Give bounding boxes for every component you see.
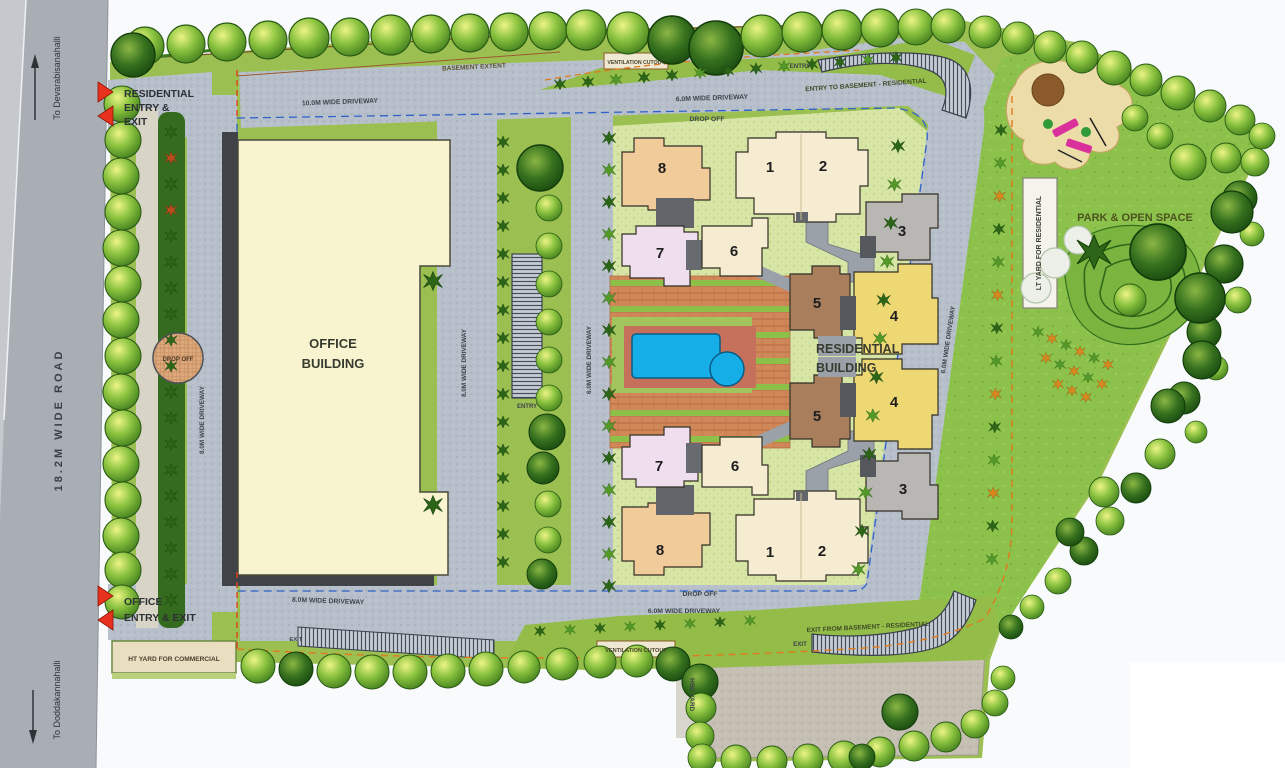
tree-icon [1170, 144, 1206, 180]
tree-icon [371, 15, 411, 55]
tower-number: 1 [766, 159, 774, 176]
tree-icon [469, 652, 503, 686]
tree-icon [648, 16, 696, 64]
tower-number: 1 [766, 544, 774, 561]
road-south-destination-label: To Doddakannahalli [52, 660, 62, 739]
tree-icon [241, 649, 275, 683]
tower-number: 4 [890, 308, 899, 325]
tree-icon [103, 518, 139, 554]
tree-icon [882, 694, 918, 730]
park-open-space-label: PARK & OPEN SPACE [1077, 212, 1193, 224]
ventilation-cutout-bottom-label: VENTILATION CUTOUT [605, 648, 667, 654]
tree-icon [105, 194, 141, 230]
tree-icon [1211, 191, 1253, 233]
driveway-label-center-right: 6.0M WIDE DRIVEWAY [586, 325, 593, 394]
driveway-label-center-left: 8.0M WIDE DRIVEWAY [461, 328, 468, 397]
tree-icon [1194, 90, 1226, 122]
tree-icon [208, 23, 246, 61]
tree-icon [490, 13, 528, 51]
tree-icon [1002, 22, 1034, 54]
tree-icon [1114, 284, 1146, 316]
tree-icon [1097, 51, 1131, 85]
tree-icon [861, 9, 899, 47]
tree-icon [1151, 389, 1185, 423]
tree-icon [111, 33, 155, 77]
tree-icon [991, 666, 1015, 690]
tree-icon [536, 271, 562, 297]
entry-label-top-right: ENTRY [790, 63, 812, 70]
tree-icon [103, 374, 139, 410]
tree-icon [412, 15, 450, 53]
tower-number: 3 [898, 223, 906, 240]
tree-icon [105, 410, 141, 446]
tree-icon [535, 527, 561, 553]
tree-icon [1211, 143, 1241, 173]
entry-label-pool-walkway: ENTRY [517, 404, 537, 410]
ht-yard-label: HT YARD FOR COMMERCIAL [128, 656, 220, 663]
tree-icon [931, 9, 965, 43]
tree-icon [529, 414, 565, 450]
tree-icon [451, 14, 489, 52]
tree-icon [249, 21, 287, 59]
tree-icon [517, 145, 563, 191]
residential-entry-label-3: EXIT [124, 116, 148, 128]
tree-icon [1225, 287, 1251, 313]
tree-icon [969, 16, 1001, 48]
tree-icon [689, 21, 743, 75]
tree-icon [1147, 123, 1173, 149]
driveway-label-bottom-center: 6.0M WIDE DRIVEWAY [648, 608, 721, 615]
tree-icon [1130, 224, 1186, 280]
lt-yard-label: LT YARD FOR RESIDENTIAL [1036, 195, 1043, 290]
tree-icon [289, 18, 329, 58]
tree-icon [536, 309, 562, 335]
office-building-label-1: OFFICE [309, 336, 357, 351]
tree-icon [566, 10, 606, 50]
office-entry-label-1: OFFICE [124, 596, 163, 608]
tree-icon [527, 559, 557, 589]
exit-label-bottom-left: EXIT [290, 637, 303, 643]
residential-entry-label-2: ENTRY & [124, 102, 170, 114]
tree-icon [103, 302, 139, 338]
tree-icon [1121, 473, 1151, 503]
tower-number: 6 [731, 458, 739, 475]
tree-icon [167, 25, 205, 63]
page-corner-blank [1130, 662, 1285, 768]
tower-number: 5 [813, 295, 821, 312]
dropoff-label-top: DROP OFF [690, 116, 725, 123]
tree-icon [103, 230, 139, 266]
tree-icon [105, 266, 141, 302]
tree-icon [1185, 421, 1207, 443]
tower-number: 3 [899, 481, 907, 498]
tower-number: 4 [890, 394, 899, 411]
office-building-label-2: BUILDING [302, 356, 365, 371]
tower-number: 8 [658, 160, 666, 177]
tree-icon [688, 744, 716, 768]
tree-icon [1161, 76, 1195, 110]
tree-icon [1089, 477, 1119, 507]
site-plan-canvas: 18.2M WIDE ROAD To Devarabisanahalli To … [0, 0, 1285, 768]
tree-icon [527, 452, 559, 484]
tree-icon [355, 655, 389, 689]
pool-deck [610, 276, 790, 448]
tree-icon [849, 744, 875, 768]
tree-icon [961, 710, 989, 738]
tower-number: 7 [655, 458, 663, 475]
hsd-yard-label: HSD YARD [688, 678, 695, 712]
residential-entry-label-1: RESIDENTIAL [124, 88, 195, 100]
tree-icon [529, 12, 567, 50]
tree-icon [105, 482, 141, 518]
tree-icon [1241, 148, 1269, 176]
tree-icon [931, 722, 961, 752]
tree-icon [1045, 568, 1071, 594]
ventilation-cutout-top-label: VENTILATION CUTOUT [607, 60, 665, 66]
tree-icon [1130, 64, 1162, 96]
exit-label-bottom-right: EXIT [793, 641, 807, 648]
tree-icon [898, 9, 934, 45]
ht-yard-green-edge [112, 673, 236, 679]
tree-icon [1096, 507, 1124, 535]
tree-icon [1034, 31, 1066, 63]
tree-icon [982, 690, 1008, 716]
road-north-destination-label: To Devarabisanahalli [52, 36, 62, 120]
swimming-pool [632, 334, 720, 378]
tree-icon [899, 731, 929, 761]
tower-number: 8 [656, 542, 664, 559]
tree-icon [105, 338, 141, 374]
residential-building-label-2: BUILDING [816, 361, 876, 375]
tree-icon [822, 10, 862, 50]
tree-icon [508, 651, 540, 683]
tree-icon [431, 654, 465, 688]
tree-icon [607, 12, 649, 54]
tower-number: 5 [813, 408, 821, 425]
tree-icon [999, 615, 1023, 639]
tree-icon [1056, 518, 1084, 546]
dropoff-circle-label: DROP OFF [163, 357, 194, 363]
dropoff-label-bottom: DROP OFF [683, 591, 718, 598]
tree-icon [1122, 105, 1148, 131]
tree-icon [103, 158, 139, 194]
pool-round-basin [710, 352, 744, 386]
tree-icon [741, 15, 783, 57]
tower-number: 2 [819, 158, 827, 175]
road-name-label: 18.2M WIDE ROAD [53, 349, 65, 492]
residential-building-label-1: RESIDENTIAL [816, 342, 900, 356]
tree-icon [782, 12, 822, 52]
tree-icon [536, 233, 562, 259]
site-plan: 18.2M WIDE ROAD To Devarabisanahalli To … [0, 0, 1285, 768]
tree-icon [1145, 439, 1175, 469]
tree-icon [1183, 341, 1221, 379]
tree-icon [103, 446, 139, 482]
tree-icon [1066, 41, 1098, 73]
tree-icon [536, 195, 562, 221]
tree-icon [1249, 123, 1275, 149]
tree-icon [1175, 273, 1225, 323]
tree-icon [105, 552, 141, 588]
tower-number: 2 [818, 543, 826, 560]
tree-icon [536, 385, 562, 411]
tower-number: 7 [656, 245, 664, 262]
office-entry-label-2: ENTRY & EXIT [124, 612, 196, 624]
tree-icon [1020, 595, 1044, 619]
tree-icon [317, 654, 351, 688]
tree-icon [279, 652, 313, 686]
tree-icon [546, 648, 578, 680]
driveway-label-left: 8.0M WIDE DRIVEWAY [199, 385, 206, 454]
tree-icon [393, 655, 427, 689]
tree-icon [535, 491, 561, 517]
tree-icon [536, 347, 562, 373]
tower-number: 6 [730, 243, 738, 260]
tree-icon [331, 18, 369, 56]
